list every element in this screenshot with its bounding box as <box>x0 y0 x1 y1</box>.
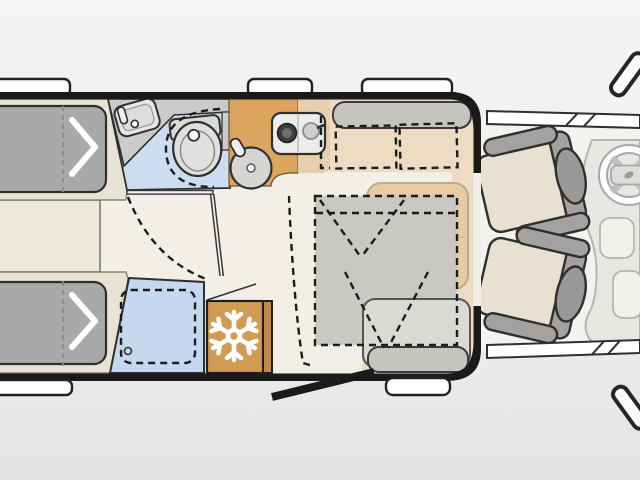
drain <box>247 164 255 172</box>
burner-light <box>303 123 319 139</box>
center-console <box>600 218 634 258</box>
dinette <box>315 99 473 373</box>
side-mirror-bottom <box>610 384 640 432</box>
motorhome-floorplan <box>0 0 640 480</box>
drain <box>130 120 139 129</box>
floorplan-canvas <box>0 0 640 480</box>
shower <box>110 278 204 373</box>
wall-stub-top <box>474 131 482 173</box>
window <box>0 380 72 395</box>
single-bed-top <box>0 99 127 200</box>
flush-button <box>188 129 200 141</box>
bench-backrest-bottom <box>368 347 468 372</box>
washroom-wall <box>127 191 213 195</box>
cooktop-unit <box>272 113 325 154</box>
single-bed-bottom <box>0 272 128 373</box>
entry-step <box>386 378 450 395</box>
dashboard-panel <box>613 271 640 318</box>
cabinet-between-beds <box>0 200 100 272</box>
wall-stub-bottom <box>474 306 482 342</box>
side-mirror-top <box>608 50 640 98</box>
cab <box>471 50 640 431</box>
cab-window-band-top <box>487 111 640 128</box>
fridge-door-band <box>263 301 272 373</box>
